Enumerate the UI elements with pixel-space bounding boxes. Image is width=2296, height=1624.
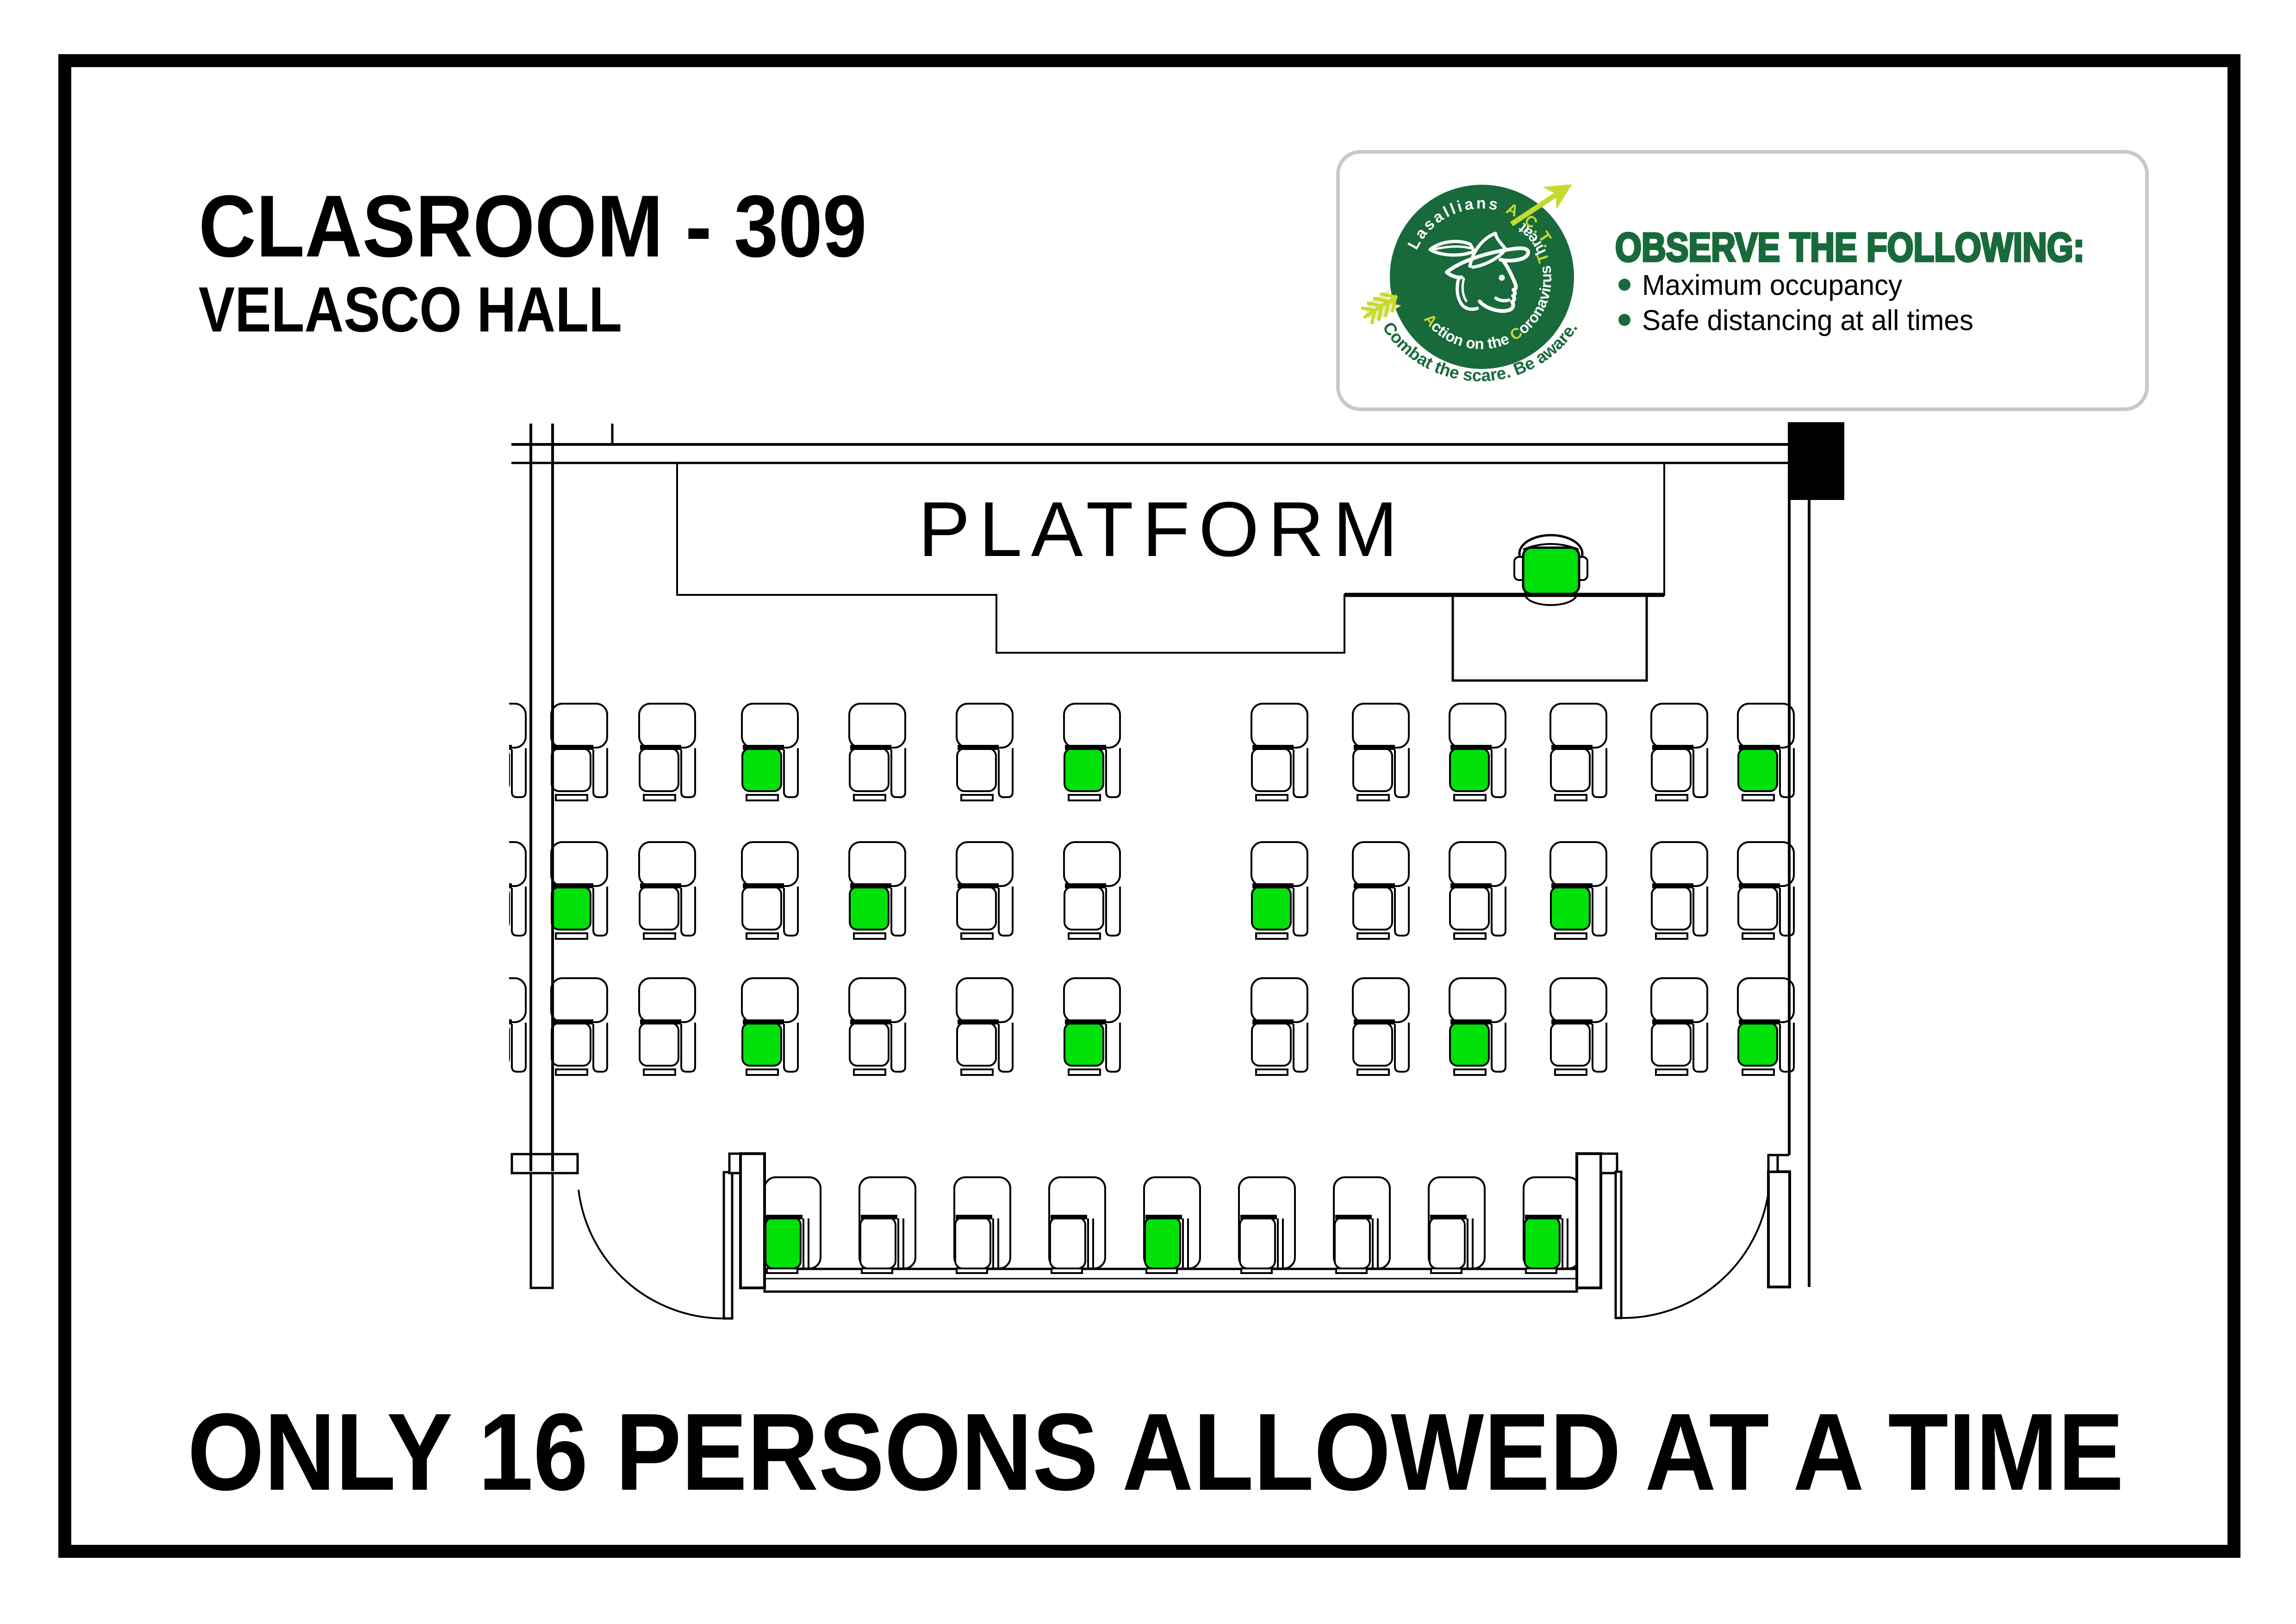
svg-text:VELASCO HALL: VELASCO HALL [199, 274, 622, 345]
svg-text:PLATFORM: PLATFORM [918, 486, 1398, 573]
svg-text:OBSERVE THE FOLLOWING:: OBSERVE THE FOLLOWING: [1615, 225, 2084, 270]
svg-text:CLASROOM - 309: CLASROOM - 309 [199, 177, 867, 275]
svg-text:Maximum occupancy: Maximum occupancy [1642, 269, 1902, 301]
svg-text:ONLY 16 PERSONS ALLOWED AT A T: ONLY 16 PERSONS ALLOWED AT A TIME [187, 1391, 2124, 1513]
svg-text:Safe distancing at all times: Safe distancing at all times [1642, 305, 1973, 337]
